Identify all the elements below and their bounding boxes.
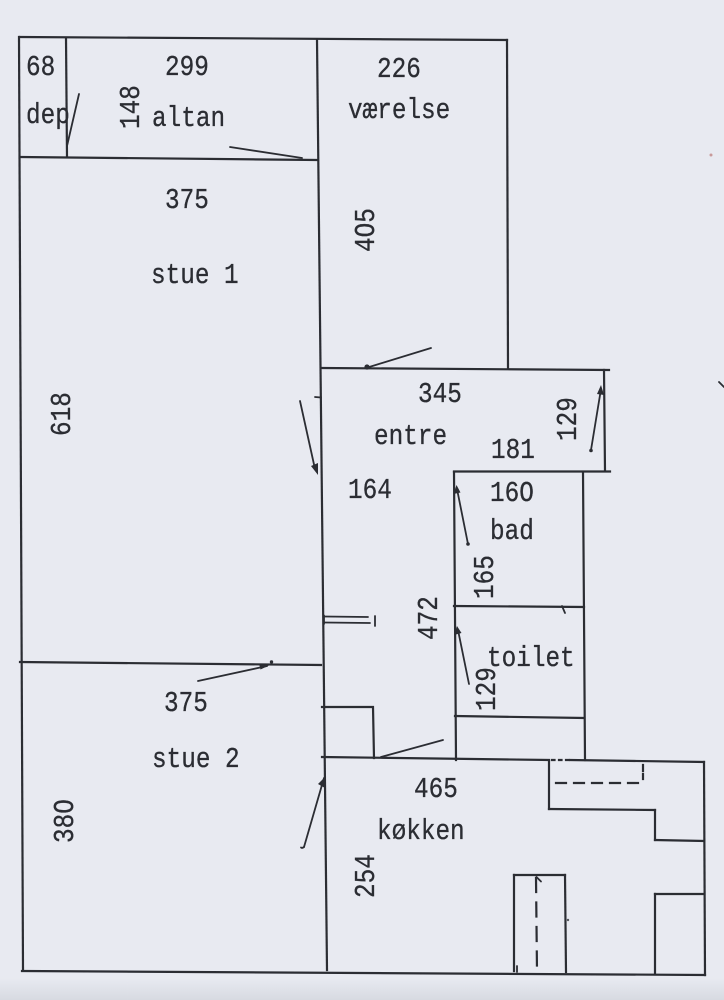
svg-text:38O: 38O: [50, 799, 82, 843]
svg-text:375: 375: [165, 185, 209, 217]
svg-text:465: 465: [414, 774, 458, 806]
svg-text:181: 181: [491, 435, 535, 467]
svg-text:165: 165: [470, 555, 502, 599]
svg-text:16O: 16O: [490, 478, 534, 510]
svg-text:375: 375: [164, 688, 208, 720]
svg-text:stue 1: stue 1: [151, 260, 239, 292]
svg-text:4O5: 4O5: [351, 208, 383, 252]
svg-text:bad: bad: [490, 516, 534, 548]
svg-text:148: 148: [116, 85, 148, 129]
svg-text:618: 618: [47, 392, 79, 436]
svg-text:køkken: køkken: [377, 816, 465, 848]
svg-text:68: 68: [26, 52, 55, 84]
svg-text:altan: altan: [152, 103, 225, 135]
svg-text:129: 129: [472, 667, 504, 711]
svg-text:entre: entre: [374, 421, 447, 453]
svg-text:164: 164: [348, 475, 392, 507]
svg-text:129: 129: [553, 397, 585, 441]
svg-text:299: 299: [165, 52, 209, 84]
svg-text:472: 472: [414, 596, 446, 640]
svg-text:dep: dep: [26, 100, 70, 132]
svg-text:226: 226: [377, 54, 421, 86]
svg-text:værelse: værelse: [348, 95, 450, 127]
svg-text:stue 2: stue 2: [152, 744, 240, 776]
svg-text:254: 254: [351, 854, 383, 898]
svg-text:345: 345: [418, 379, 462, 411]
